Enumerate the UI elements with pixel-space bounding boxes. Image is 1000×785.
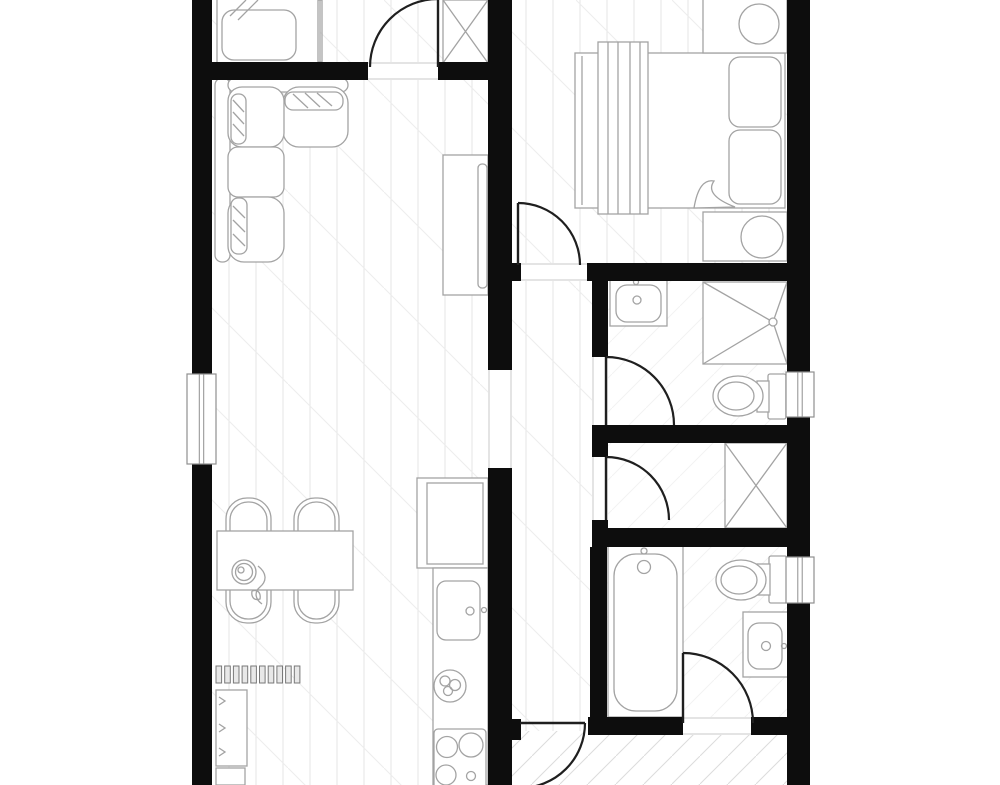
- window-right-low: [786, 557, 814, 603]
- floor-plan: [0, 0, 1000, 785]
- floor-bottom-right: [588, 735, 787, 785]
- wall-bath2-south-a: [588, 717, 683, 735]
- window-left-frame: [187, 374, 216, 464]
- radiator-bar: [268, 666, 274, 683]
- wall-left-lower: [192, 464, 212, 785]
- nightstand-bottom: [703, 212, 787, 261]
- wall-bath2-west: [590, 547, 607, 735]
- kitchen-fridge-part: [427, 483, 483, 564]
- window-right-top: [786, 372, 814, 417]
- dining-table-part: [217, 531, 353, 590]
- radiator-bar: [251, 666, 257, 683]
- floor-hallway-grain: [512, 281, 592, 731]
- nightstand-top: [703, 0, 787, 53]
- tv-cabinet-part: [478, 164, 487, 288]
- wall-bedroom-south-stub: [510, 263, 521, 281]
- sink-bathroom-1: [610, 278, 667, 326]
- bed-main-part: [729, 57, 781, 127]
- sink-bathroom-2-part: [748, 623, 782, 669]
- closet-hallway: [725, 443, 787, 528]
- wall-right-lower: [787, 603, 810, 785]
- sofa-sectional-part: [228, 147, 284, 197]
- wall-bedroom-south: [587, 263, 787, 281]
- shelf-unit-part: [216, 768, 245, 785]
- wall-top-room-south-a: [192, 62, 368, 80]
- toilet-bathroom-2: [716, 556, 787, 603]
- wall-right-upper: [787, 0, 810, 372]
- radiator-bar: [286, 666, 292, 683]
- radiator-bar: [277, 666, 283, 683]
- bed-top-room: [217, 0, 322, 65]
- wall-left-upper: [192, 0, 212, 374]
- toilet-bathroom-1-part: [768, 374, 786, 419]
- window-right-top-frame: [786, 372, 814, 417]
- wall-bath1-west: [592, 281, 608, 357]
- radiator-bar: [233, 666, 239, 683]
- shelf-unit: [216, 690, 247, 785]
- bed-top-room-part: [222, 10, 296, 60]
- toilet-bathroom-2-part: [721, 566, 757, 594]
- closet-top: [443, 0, 488, 63]
- sink-bathroom-2: [743, 612, 788, 677]
- wall-closet-hall-south: [592, 528, 787, 547]
- window-left: [187, 374, 216, 464]
- shower-part: [769, 318, 777, 326]
- toilet-bathroom-1-part: [718, 382, 754, 410]
- radiator-bar: [225, 666, 231, 683]
- wall-center-lower: [488, 468, 512, 785]
- radiator-bar: [260, 666, 266, 683]
- floor-entry: [512, 731, 588, 785]
- wall-right-mid: [787, 417, 810, 557]
- wall-bath2-south-b: [751, 717, 787, 735]
- wall-bath1-south: [592, 425, 787, 443]
- bed-main-part: [729, 130, 781, 204]
- wall-center-upper: [488, 0, 512, 370]
- window-right-low-frame: [786, 557, 814, 603]
- bathtub: [608, 545, 683, 717]
- bed-main: [575, 42, 785, 214]
- toilet-bathroom-2-part: [769, 556, 787, 603]
- radiator-bar: [216, 666, 222, 683]
- toilet-bathroom-1: [713, 374, 786, 419]
- sofa-sectional-part: [231, 94, 246, 144]
- radiator-bar: [242, 666, 248, 683]
- kitchen-sink: [437, 581, 487, 640]
- radiator-bar: [294, 666, 300, 683]
- tv-cabinet: [443, 155, 488, 295]
- kitchen-fridge: [417, 478, 488, 568]
- shower: [703, 282, 787, 364]
- wall-entry-door-stub: [510, 719, 521, 740]
- nightstand-top-part: [703, 0, 787, 53]
- kitchen-stove: [434, 729, 486, 785]
- bathtub-part: [614, 554, 677, 711]
- floor-plan-page: [0, 0, 1000, 785]
